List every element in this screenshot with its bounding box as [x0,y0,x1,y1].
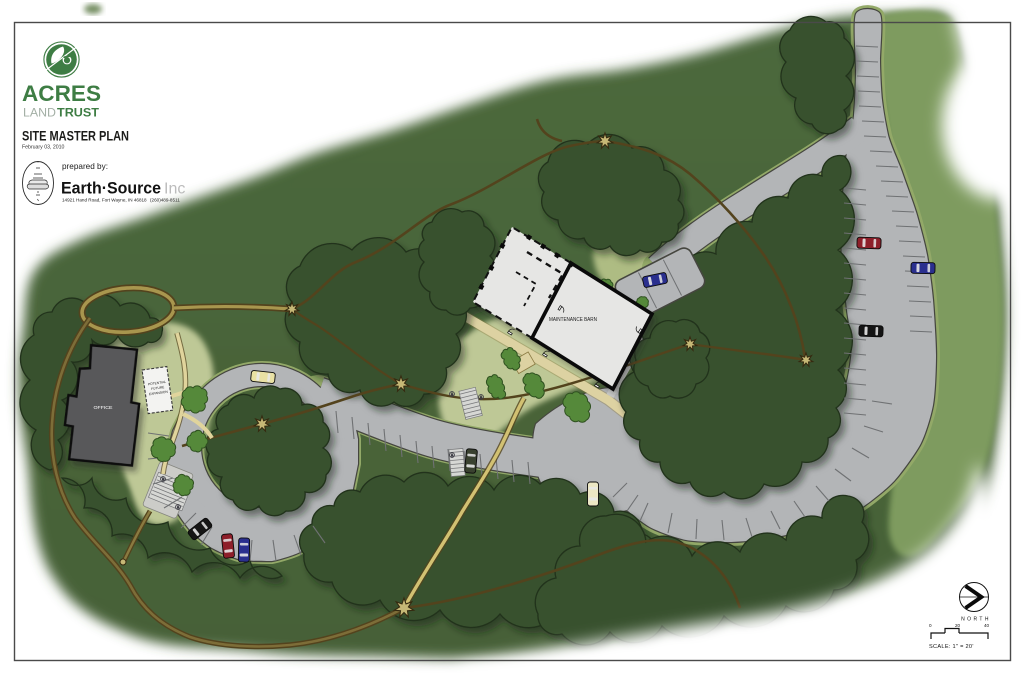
svg-text:OFFICE: OFFICE [94,405,113,411]
svg-text:NORTH: NORTH [961,617,991,623]
svg-text:prepared by:: prepared by: [62,162,108,171]
svg-text:ACRES: ACRES [22,81,101,106]
svg-text:40: 40 [984,623,990,628]
svg-text:Earth·Source: Earth·Source [61,180,161,198]
svg-text:14921 Hand Road, Fort Wayne, I: 14921 Hand Road, Fort Wayne, IN 46818 [62,198,147,203]
svg-text:(260)489-8511: (260)489-8511 [150,198,180,203]
svg-text:Inc: Inc [164,181,185,198]
svg-text:MAINTENANCE BARN: MAINTENANCE BARN [549,317,597,323]
svg-text:February 03, 2010: February 03, 2010 [22,145,65,151]
svg-text:LAND: LAND [23,108,56,120]
svg-text:SCALE: 1" = 20': SCALE: 1" = 20' [929,644,974,650]
svg-text:TRUST: TRUST [57,108,99,120]
svg-text:20: 20 [955,623,961,628]
svg-text:SITE MASTER PLAN: SITE MASTER PLAN [22,128,129,144]
svg-text:0: 0 [929,623,932,628]
